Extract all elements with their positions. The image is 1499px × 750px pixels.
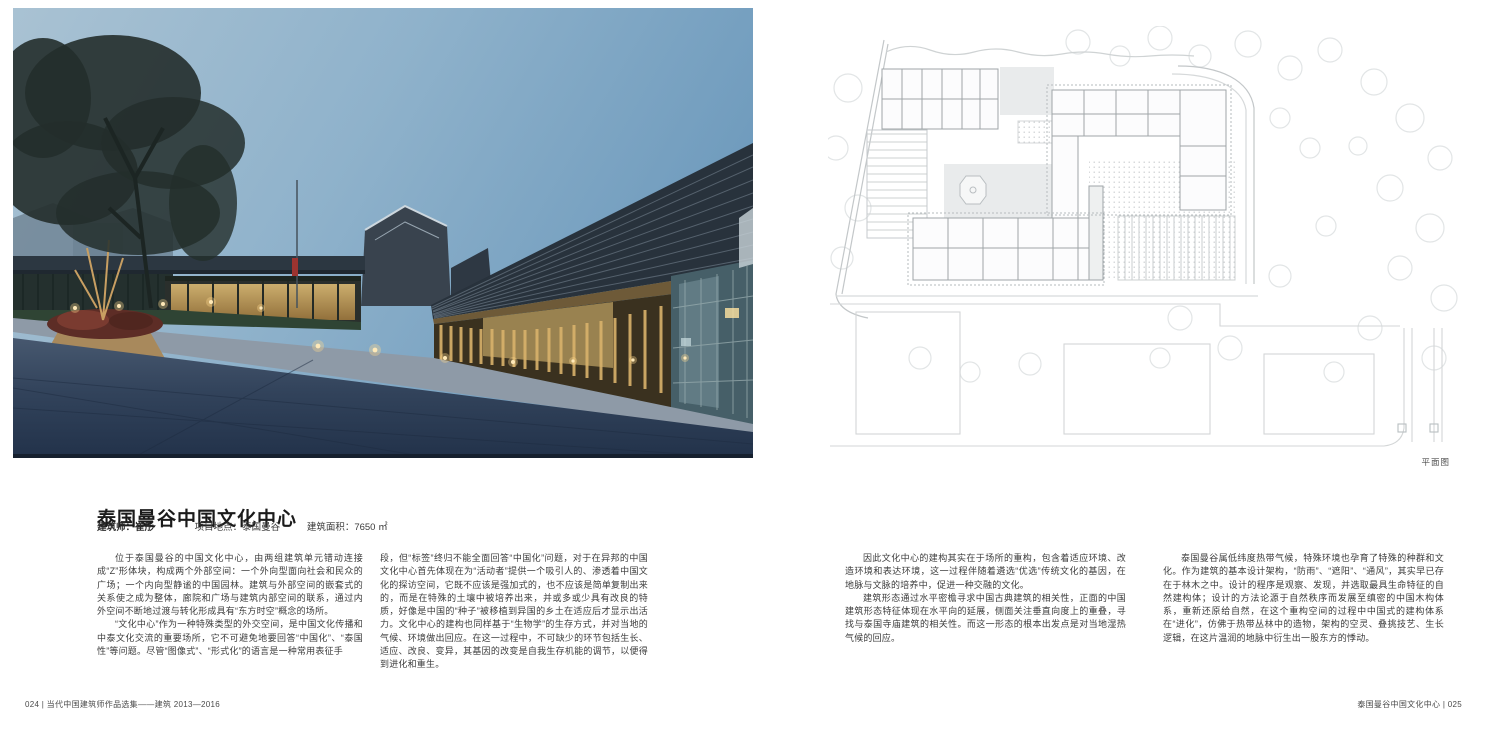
byline-area: 建筑面积：7650 ㎡ — [307, 522, 388, 533]
paragraph: 因此文化中心的建构其实在于场所的重构，包含着适应环境、改造环境和表达环境，这一过… — [845, 552, 1126, 592]
plan-garden-court — [944, 164, 1062, 218]
byline-architect: 建筑师：崔彤 — [97, 522, 154, 533]
site-plan-drawing — [828, 26, 1470, 466]
text-column-3: 因此文化中心的建构其实在于场所的重构，包含着适应环境、改造环境和表达环境，这一过… — [845, 552, 1126, 645]
byline: 建筑师：崔彤 项目地点：泰国曼谷 建筑面积：7650 ㎡ — [97, 519, 388, 533]
paragraph: 泰国曼谷属低纬度热带气候，特殊环境也孕育了特殊的种群和文化。作为建筑的基本设计架… — [1163, 552, 1444, 645]
left-eave — [13, 256, 365, 270]
paragraph-continuation: 段，但“标签”终归不能全面回答“中国化”问题，对于在异邦的中国文化中心首先体现在… — [380, 552, 648, 672]
paragraph: 位于泰国曼谷的中国文化中心，由两组建筑单元错动连接成“Z”形体块，构成两个外部空… — [97, 552, 363, 618]
building-photo — [13, 8, 753, 458]
footer-page-number-left: 024 | 当代中国建筑师作品选集——建筑 2013—2016 — [25, 699, 220, 710]
text-column-2: 段，但“标签”终归不能全面回答“中国化”问题，对于在异邦的中国文化中心首先体现在… — [380, 552, 648, 672]
photo-bottom-edge — [13, 454, 753, 458]
book-spread: 泰国曼谷中国文化中心 建筑师：崔彤 项目地点：泰国曼谷 建筑面积：7650 ㎡ … — [0, 0, 1499, 750]
paragraph: 建筑形态通过水平密檐寻求中国古典建筑的相关性，正面的中国建筑形态特征体现在水平向… — [845, 592, 1126, 645]
byline-location: 项目地点：泰国曼谷 — [195, 522, 281, 533]
plan-striped-garden — [1118, 216, 1235, 280]
text-column-4: 泰国曼谷属低纬度热带气候，特殊环境也孕育了特殊的种群和文化。作为建筑的基本设计架… — [1163, 552, 1444, 645]
plan-courtyard-link — [1018, 121, 1054, 143]
site-plan — [828, 26, 1470, 466]
plan-south-parcels — [830, 304, 1442, 446]
plan-caption: 平面图 — [1385, 456, 1450, 468]
photo-illustration — [13, 8, 753, 458]
text-column-1: 位于泰国曼谷的中国文化中心，由两组建筑单元错动连接成“Z”形体块，构成两个外部空… — [97, 552, 363, 658]
plan-courtyard-north — [1000, 67, 1054, 115]
footer-page-number-right: 泰国曼谷中国文化中心 | 025 — [1357, 699, 1462, 710]
paragraph: “文化中心”作为一种特殊类型的外交空间，是中国文化传播和中泰文化交流的重要场所，… — [97, 618, 363, 658]
